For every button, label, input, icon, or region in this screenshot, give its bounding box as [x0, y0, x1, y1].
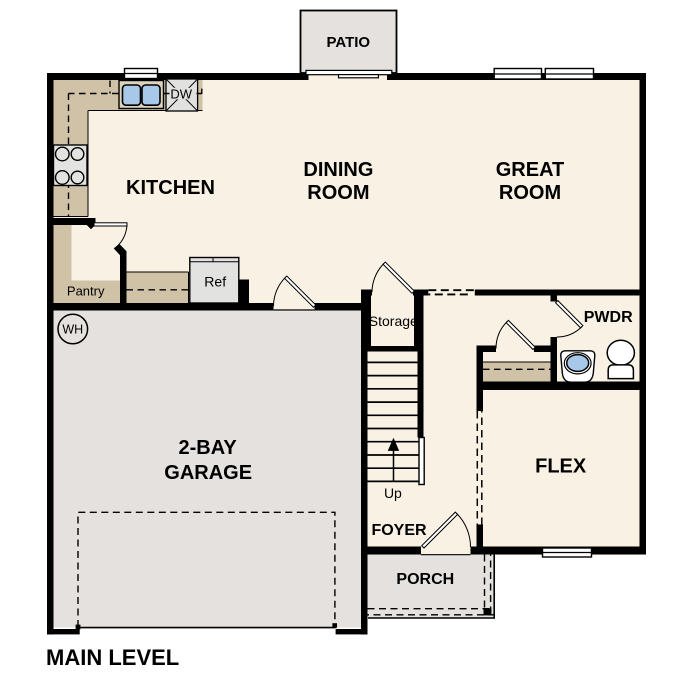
- svg-text:GARAGE: GARAGE: [164, 462, 252, 484]
- svg-text:FOYER: FOYER: [371, 522, 427, 539]
- svg-text:PWDR: PWDR: [584, 309, 633, 326]
- svg-text:FLEX: FLEX: [535, 456, 587, 478]
- svg-text:DINING: DINING: [303, 159, 373, 181]
- svg-text:PORCH: PORCH: [396, 571, 454, 588]
- svg-text:PATIO: PATIO: [326, 34, 370, 51]
- svg-text:WH: WH: [62, 322, 83, 336]
- svg-text:ROOM: ROOM: [307, 182, 369, 204]
- svg-text:Up: Up: [384, 485, 402, 501]
- svg-text:KITCHEN: KITCHEN: [126, 177, 215, 199]
- svg-text:Storage: Storage: [369, 313, 418, 329]
- svg-text:Ref: Ref: [204, 274, 226, 290]
- svg-text:ROOM: ROOM: [499, 182, 561, 204]
- svg-text:MAIN LEVEL: MAIN LEVEL: [46, 645, 179, 670]
- svg-text:Pantry: Pantry: [67, 284, 105, 299]
- svg-text:2-BAY: 2-BAY: [179, 437, 238, 459]
- svg-text:DW: DW: [170, 87, 192, 102]
- svg-text:GREAT: GREAT: [496, 159, 565, 181]
